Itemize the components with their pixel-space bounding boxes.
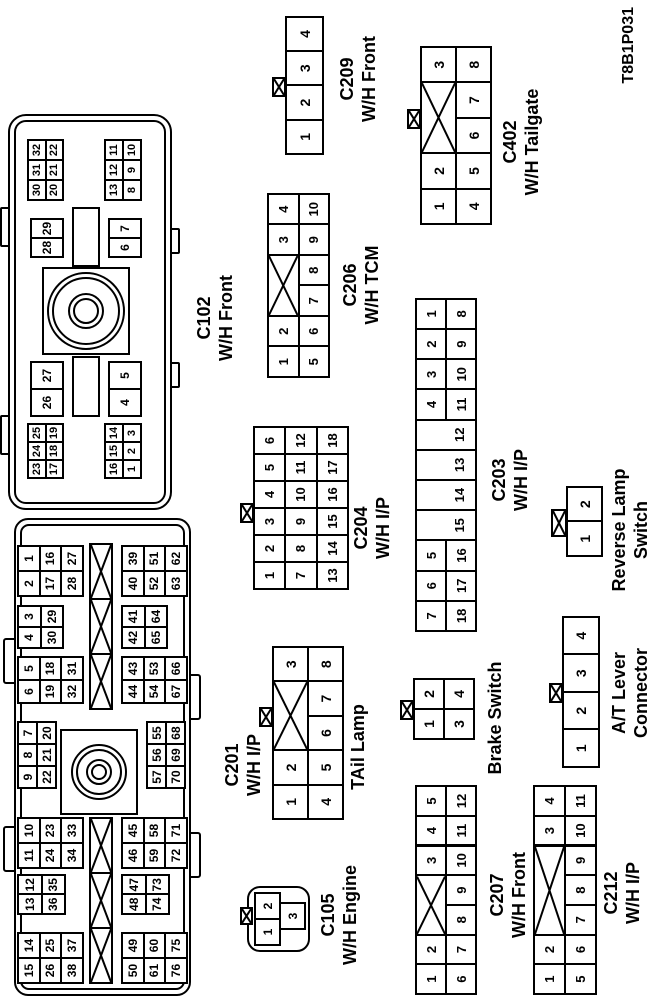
pin-cell: 41 bbox=[121, 605, 146, 628]
pin-cell: 56 bbox=[146, 743, 167, 767]
pin-cell: 2 bbox=[415, 328, 447, 360]
pin-cell: 12 bbox=[17, 874, 43, 896]
c212-label: C212W/H I/P bbox=[601, 862, 645, 924]
pin-cell: 53 bbox=[143, 656, 167, 681]
pin-cell: 9 bbox=[298, 224, 331, 257]
pin-cell: 1 bbox=[254, 918, 281, 946]
pin-cell: 68 bbox=[165, 721, 186, 745]
pin-cell: 47 bbox=[121, 874, 147, 896]
connector-label-line: W/H Engine bbox=[340, 865, 362, 965]
connector-label-line: C206 bbox=[340, 246, 362, 325]
pin-cell: 72 bbox=[164, 842, 188, 869]
pin-cell: 5 bbox=[455, 152, 492, 189]
connector-label-line: W/H Front bbox=[359, 36, 381, 122]
pin-cell: 5 bbox=[415, 785, 447, 817]
pin-cell: 2 bbox=[17, 570, 41, 597]
c402-label: C402W/H Tailgate bbox=[500, 89, 544, 196]
pin-cell: 39 bbox=[121, 545, 145, 572]
pin-cell: 8 bbox=[122, 179, 142, 201]
pin-cell: 15 bbox=[17, 957, 41, 984]
c209-label: C209W/H Front bbox=[337, 36, 381, 122]
pin-cell: 1 bbox=[285, 119, 324, 155]
bolt-hole-circle bbox=[73, 298, 99, 324]
lock-tab-icon bbox=[259, 707, 273, 727]
pin-cell: 64 bbox=[144, 605, 169, 628]
pin-cell: 22 bbox=[36, 765, 57, 789]
pin-cell: 1 bbox=[122, 459, 142, 479]
pin-cell: 7 bbox=[108, 218, 142, 239]
pin-cell: 9 bbox=[445, 874, 477, 906]
pin-cell: 4 bbox=[267, 193, 300, 226]
keyway-x-cell bbox=[89, 872, 113, 929]
pin-cell: 18 bbox=[45, 441, 65, 461]
pin-cell: 4 bbox=[415, 815, 447, 847]
pin-cell: 13 bbox=[316, 561, 349, 590]
connector-label-line: W/H TCM bbox=[362, 246, 384, 325]
pin-cell: 45 bbox=[121, 817, 145, 844]
lock-tab-icon bbox=[240, 907, 253, 925]
connector-label-line: C209 bbox=[337, 36, 359, 122]
pin-cell: 10 bbox=[284, 480, 317, 509]
pin-cell: 2 bbox=[122, 441, 142, 461]
pin-cell: 69 bbox=[165, 743, 186, 767]
pin-cell: 1 bbox=[562, 729, 600, 769]
pin-cell: 7 bbox=[298, 285, 331, 318]
pin-cell: 4 bbox=[17, 626, 42, 649]
pin-cell: 32 bbox=[60, 679, 84, 704]
pin-cell: 67 bbox=[164, 679, 188, 704]
pin-cell: 6 bbox=[108, 237, 142, 258]
pin-cell: 1 bbox=[420, 188, 457, 225]
pin-cell: 28 bbox=[60, 570, 84, 597]
pin-cell: 57 bbox=[146, 765, 167, 789]
pin-cell: 30 bbox=[40, 626, 65, 649]
pin-cell: 6 bbox=[415, 570, 447, 602]
pin-cell: 8 bbox=[284, 534, 317, 563]
pin-cell: 65 bbox=[144, 626, 169, 649]
keyway-x-cell bbox=[89, 653, 113, 710]
pin-cell: 1 bbox=[415, 298, 447, 330]
at-lever-connector-label: A/T LeverConnector bbox=[609, 648, 653, 738]
connector-label-line: W/H Front bbox=[509, 852, 531, 938]
connector-label-line: C105 bbox=[318, 865, 340, 965]
pin-cell: 3 bbox=[279, 902, 306, 930]
pin-cell: 6 bbox=[564, 934, 597, 966]
connector-label-line: C204 bbox=[351, 497, 373, 559]
pin-cell: 18 bbox=[39, 656, 63, 681]
pin-cell: 12 bbox=[284, 426, 317, 455]
pin-cell: 58 bbox=[143, 817, 167, 844]
pin-cell: 3 bbox=[285, 50, 324, 86]
pin-cell: 8 bbox=[307, 646, 344, 682]
pin-cell: 2 bbox=[533, 934, 566, 966]
pin-cell: 16 bbox=[39, 545, 63, 572]
pin-cell: 7 bbox=[415, 600, 447, 632]
pin-cell: 2 bbox=[272, 749, 309, 785]
lock-tab-icon bbox=[400, 700, 414, 720]
pin-cell: 4 bbox=[562, 616, 600, 656]
pin-cell: 11 bbox=[17, 842, 41, 869]
pin-cell: 27 bbox=[30, 361, 64, 390]
pin-cell: 9 bbox=[284, 507, 317, 536]
pin-cell: 25 bbox=[39, 932, 63, 959]
pin-cell: 14 bbox=[17, 932, 41, 959]
c102-blank-cavity bbox=[72, 207, 100, 267]
c206-label: C206W/H TCM bbox=[340, 246, 384, 325]
pin-cell: 14 bbox=[316, 534, 349, 563]
pin-cell: 46 bbox=[121, 842, 145, 869]
pin-cell: 27 bbox=[60, 545, 84, 572]
pin-cell: 1 bbox=[267, 346, 300, 379]
pin-cell: 61 bbox=[143, 957, 167, 984]
pin-cell: 55 bbox=[146, 721, 167, 745]
pin-cell: 1 bbox=[253, 561, 286, 590]
pin-cell: 17 bbox=[39, 570, 63, 597]
pin-cell: 54 bbox=[143, 679, 167, 704]
pin-cell: 19 bbox=[39, 679, 63, 704]
pin-cell: 29 bbox=[30, 218, 64, 239]
pin-cell: 63 bbox=[164, 570, 188, 597]
pin-cell: 2 bbox=[566, 486, 603, 523]
lock-tab-icon bbox=[272, 77, 286, 97]
pin-cell: 18 bbox=[445, 600, 477, 632]
pin-cell: 7 bbox=[284, 561, 317, 590]
pin-cell: 4 bbox=[415, 388, 447, 420]
pin-cell: 33 bbox=[60, 817, 84, 844]
pin-cell: 35 bbox=[41, 874, 67, 896]
pin-cell: 26 bbox=[30, 388, 64, 417]
pin-cell: 60 bbox=[143, 932, 167, 959]
connector-label-line: A/T Lever bbox=[609, 648, 631, 738]
pin-cell: 21 bbox=[36, 743, 57, 767]
pin-cell: 4 bbox=[253, 480, 286, 509]
pin-cell: 1 bbox=[533, 963, 566, 995]
pin-cell: 1 bbox=[17, 545, 41, 572]
pin-cell: 16 bbox=[445, 539, 477, 571]
pin-cell: 10 bbox=[445, 358, 477, 390]
pin-cell: 12 bbox=[415, 419, 477, 451]
pin-cell: 3 bbox=[122, 423, 142, 443]
pin-cell: 8 bbox=[445, 904, 477, 936]
pin-cell: 3 bbox=[253, 507, 286, 536]
connector-label-line: W/H I/P bbox=[244, 734, 266, 796]
pin-cell: 11 bbox=[564, 785, 597, 817]
pin-cell: 9 bbox=[564, 845, 597, 877]
pin-cell: 15 bbox=[415, 509, 477, 541]
pin-cell: 1 bbox=[566, 521, 603, 558]
pin-cell: 28 bbox=[30, 237, 64, 258]
pin-cell: 44 bbox=[121, 679, 145, 704]
connector-label-line: Switch bbox=[631, 468, 653, 591]
c207-label: C207W/H Front bbox=[487, 852, 531, 938]
pin-cell: 3 bbox=[533, 815, 566, 847]
c204-label: C204W/H I/P bbox=[351, 497, 395, 559]
pin-cell: 20 bbox=[45, 179, 65, 201]
pin-cell: 6 bbox=[445, 963, 477, 995]
pin-cell: 4 bbox=[108, 388, 142, 417]
pin-cell: 2 bbox=[253, 534, 286, 563]
c105-label: C105W/H Engine bbox=[318, 865, 362, 965]
pin-cell: 75 bbox=[164, 932, 188, 959]
lock-tab-icon bbox=[240, 503, 254, 523]
pin-cell: 15 bbox=[316, 507, 349, 536]
connector-label-line: Brake Switch bbox=[485, 661, 507, 774]
pin-cell: 52 bbox=[143, 570, 167, 597]
pin-cell: 2 bbox=[254, 892, 281, 920]
connector-label-line: C212 bbox=[601, 862, 623, 924]
pin-cell: 13 bbox=[17, 894, 43, 916]
pin-cell: 3 bbox=[272, 646, 309, 682]
pin-cell: 76 bbox=[164, 957, 188, 984]
pin-cell: 16 bbox=[104, 459, 124, 479]
pin-cell: 4 bbox=[455, 188, 492, 225]
pin-cell: 22 bbox=[45, 139, 65, 161]
pin-cell: 8 bbox=[564, 874, 597, 906]
connector-label-line: W/H I/P bbox=[373, 497, 395, 559]
pin-cell: 16 bbox=[316, 480, 349, 509]
pin-cell: 3 bbox=[562, 654, 600, 694]
blocked-cell-x bbox=[533, 845, 566, 936]
pin-cell: 17 bbox=[45, 459, 65, 479]
pin-cell: 3 bbox=[17, 605, 42, 628]
pin-cell: 11 bbox=[104, 139, 124, 161]
service-manual-page: T8B1P031 1514262538371312363511102423343… bbox=[0, 0, 658, 1000]
pin-cell: 7 bbox=[17, 721, 38, 745]
pin-cell: 7 bbox=[445, 934, 477, 966]
pin-cell: 14 bbox=[415, 479, 477, 511]
pin-cell: 1 bbox=[413, 708, 445, 740]
connector-label-line: W/H I/P bbox=[623, 862, 645, 924]
pin-cell: 17 bbox=[316, 453, 349, 482]
pin-cell: 17 bbox=[445, 570, 477, 602]
pin-cell: 43 bbox=[121, 656, 145, 681]
pin-cell: 50 bbox=[121, 957, 145, 984]
pin-cell: 24 bbox=[39, 842, 63, 869]
connector-label-line: TAil Lamp bbox=[348, 704, 370, 790]
pin-cell: 9 bbox=[122, 159, 142, 181]
pin-cell: 2 bbox=[562, 691, 600, 731]
pin-cell: 6 bbox=[307, 715, 344, 751]
pin-cell: 73 bbox=[145, 874, 171, 896]
pin-cell: 7 bbox=[564, 904, 597, 936]
pin-cell: 10 bbox=[445, 845, 477, 877]
pin-cell: 2 bbox=[415, 934, 447, 966]
pin-cell: 9 bbox=[445, 328, 477, 360]
pin-cell: 6 bbox=[455, 117, 492, 154]
pin-cell: 5 bbox=[298, 346, 331, 379]
pin-cell: 3 bbox=[415, 358, 447, 390]
lock-tab-icon bbox=[549, 683, 563, 703]
diagram-code: T8B1P031 bbox=[620, 7, 638, 84]
pin-cell: 71 bbox=[164, 817, 188, 844]
pin-cell: 70 bbox=[165, 765, 186, 789]
pin-cell: 5 bbox=[307, 749, 344, 785]
pin-cell: 20 bbox=[36, 721, 57, 745]
c203-label: C203W/H I/P bbox=[489, 449, 533, 511]
pin-cell: 8 bbox=[298, 254, 331, 287]
pin-cell: 12 bbox=[104, 159, 124, 181]
pin-cell: 6 bbox=[253, 426, 286, 455]
pin-cell: 36 bbox=[41, 894, 67, 916]
keyway-x-cell bbox=[89, 598, 113, 655]
connector-label-line: C102 bbox=[194, 275, 216, 361]
connector-label-line: W/H Front bbox=[216, 275, 238, 361]
reverse-lamp-switch-label: Reverse LampSwitch bbox=[609, 468, 653, 591]
keyway-x-cell bbox=[89, 817, 113, 874]
pin-cell: 4 bbox=[307, 784, 344, 820]
lock-tab-icon bbox=[407, 109, 421, 129]
lock-tab-icon bbox=[551, 509, 567, 537]
pin-cell: 13 bbox=[415, 449, 477, 481]
blocked-cell-x bbox=[267, 254, 300, 317]
connector-label-line: Connector bbox=[631, 648, 653, 738]
pin-cell: 8 bbox=[17, 743, 38, 767]
pin-cell: 5 bbox=[564, 963, 597, 995]
pin-cell: 48 bbox=[121, 894, 147, 916]
pin-cell: 23 bbox=[39, 817, 63, 844]
pin-cell: 62 bbox=[164, 545, 188, 572]
pin-cell: 2 bbox=[285, 84, 324, 120]
pin-cell: 2 bbox=[413, 678, 445, 710]
connector-label-line: C203 bbox=[489, 449, 511, 511]
pin-cell: 59 bbox=[143, 842, 167, 869]
connector-label-line: C201 bbox=[222, 734, 244, 796]
pin-cell: 4 bbox=[533, 785, 566, 817]
pin-cell: 74 bbox=[145, 894, 171, 916]
pin-cell: 7 bbox=[307, 680, 344, 716]
pin-cell: 11 bbox=[445, 815, 477, 847]
pin-cell: 14 bbox=[104, 423, 124, 443]
pin-cell: 10 bbox=[122, 139, 142, 161]
blocked-cell-x bbox=[415, 874, 447, 935]
pin-cell: 3 bbox=[415, 845, 447, 877]
pin-cell: 5 bbox=[253, 453, 286, 482]
pin-cell: 66 bbox=[164, 656, 188, 681]
pin-cell: 29 bbox=[40, 605, 65, 628]
pin-cell: 10 bbox=[298, 193, 331, 226]
pin-cell: 5 bbox=[415, 539, 447, 571]
c102-label: C102W/H Front bbox=[194, 275, 238, 361]
brake-switch-label: Brake Switch bbox=[485, 661, 507, 774]
pin-cell: 6 bbox=[17, 679, 41, 704]
pin-cell: 1 bbox=[272, 784, 309, 820]
pin-cell: 2 bbox=[267, 315, 300, 348]
pin-cell: 12 bbox=[445, 785, 477, 817]
pin-cell: 4 bbox=[443, 678, 475, 710]
pin-cell: 21 bbox=[45, 159, 65, 181]
pin-cell: 15 bbox=[104, 441, 124, 461]
pin-cell: 40 bbox=[121, 570, 145, 597]
pin-cell: 18 bbox=[316, 426, 349, 455]
connector-label-line: C402 bbox=[500, 89, 522, 196]
pin-cell: 34 bbox=[60, 842, 84, 869]
pin-cell: 11 bbox=[284, 453, 317, 482]
pin-cell: 38 bbox=[60, 957, 84, 984]
pin-cell: 4 bbox=[285, 16, 324, 52]
pin-cell: 5 bbox=[17, 656, 41, 681]
pin-cell: 19 bbox=[45, 423, 65, 443]
pin-cell: 49 bbox=[121, 932, 145, 959]
pin-cell: 11 bbox=[445, 388, 477, 420]
connector-label-line: Reverse Lamp bbox=[609, 468, 631, 591]
blocked-cell-x bbox=[272, 680, 309, 751]
connector-label-line: W/H Tailgate bbox=[522, 89, 544, 196]
pin-cell: 13 bbox=[104, 179, 124, 201]
pin-cell: 9 bbox=[17, 765, 38, 789]
pin-cell: 3 bbox=[267, 224, 300, 257]
pin-cell: 1 bbox=[415, 963, 447, 995]
c201-label: C201W/H I/P bbox=[222, 734, 266, 796]
pin-cell: 26 bbox=[39, 957, 63, 984]
pin-cell: 2 bbox=[420, 152, 457, 189]
c102-blank-cavity bbox=[72, 356, 100, 417]
keyway-x-cell bbox=[89, 543, 113, 600]
tail-lamp-label: TAil Lamp bbox=[348, 704, 370, 790]
pin-cell: 31 bbox=[60, 656, 84, 681]
connector-label-line: C207 bbox=[487, 852, 509, 938]
pin-cell: 7 bbox=[455, 81, 492, 118]
pin-cell: 10 bbox=[17, 817, 41, 844]
pin-cell: 6 bbox=[298, 315, 331, 348]
pin-cell: 3 bbox=[420, 46, 457, 83]
blocked-cell-x bbox=[420, 81, 457, 154]
connector-label-line: W/H I/P bbox=[511, 449, 533, 511]
pin-cell: 37 bbox=[60, 932, 84, 959]
pin-cell: 8 bbox=[455, 46, 492, 83]
pin-cell: 51 bbox=[143, 545, 167, 572]
pin-cell: 5 bbox=[108, 361, 142, 390]
pin-cell: 8 bbox=[445, 298, 477, 330]
wiring-connector-diagram-canvas: T8B1P031 1514262538371312363511102423343… bbox=[0, 0, 658, 1000]
keyway-x-cell bbox=[89, 927, 113, 984]
pin-cell: 10 bbox=[564, 815, 597, 847]
pin-cell: 3 bbox=[443, 708, 475, 740]
pin-cell: 42 bbox=[121, 626, 146, 649]
bolt-hole-circle bbox=[91, 764, 107, 780]
